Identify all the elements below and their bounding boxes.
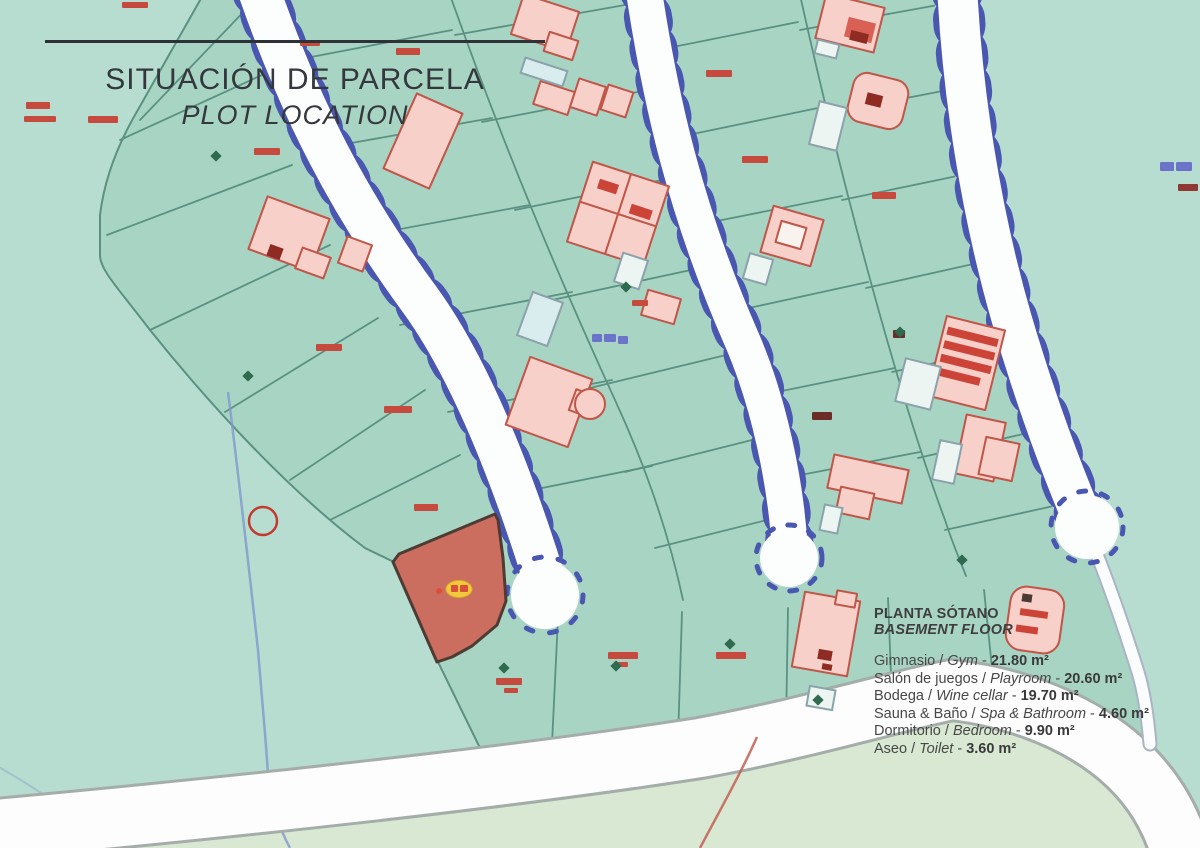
legend-item: Gimnasio / Gym - 21.80 m² [874, 653, 1149, 671]
legend-item: Dormitorio / Bedroom - 9.90 m² [874, 723, 1149, 741]
separator: / [924, 688, 936, 704]
room-area: 9.90 m² [1025, 723, 1075, 739]
separator: / [978, 671, 990, 687]
plot-marker-text-mark [460, 585, 468, 592]
plot-marker-dot [436, 588, 442, 594]
room-name-en: Gym [947, 653, 978, 669]
legend-item: Aseo / Toilet - 3.60 m² [874, 741, 1149, 759]
page-subtitle: PLOT LOCATION [45, 100, 545, 130]
room-name-en: Spa & Bathroom [980, 706, 1086, 722]
legend-item: Bodega / Wine cellar - 19.70 m² [874, 688, 1149, 706]
room-name-en: Bedroom [953, 723, 1012, 739]
plot-marker-text-mark [451, 585, 458, 592]
room-name-es: Dormitorio [874, 723, 941, 739]
separator: / [935, 653, 947, 669]
separator: - [978, 653, 991, 669]
room-area: 19.70 m² [1021, 688, 1079, 704]
page-title: SITUACIÓN DE PARCELA [45, 63, 545, 97]
room-name-es: Salón de juegos [874, 671, 978, 687]
separator: / [941, 723, 953, 739]
room-name-es: Aseo [874, 741, 907, 757]
separator: - [1012, 723, 1025, 739]
room-area: 4.60 m² [1099, 706, 1149, 722]
legend-heading: PLANTA SÓTANO BASEMENT FLOOR [874, 606, 1149, 638]
room-name-es: Sauna & Baño [874, 706, 968, 722]
street-name-label-right-edge [1160, 162, 1192, 171]
room-name-es: Bodega [874, 688, 924, 704]
title-block: SITUACIÓN DE PARCELA PLOT LOCATION [45, 40, 545, 130]
separator: / [907, 741, 919, 757]
legend-title-spanish: PLANTA SÓTANO [874, 606, 1149, 622]
room-name-es: Gimnasio [874, 653, 935, 669]
plot-marker [446, 581, 472, 598]
basement-legend: PLANTA SÓTANO BASEMENT FLOOR Gimnasio / … [874, 606, 1149, 758]
room-name-en: Playroom [990, 671, 1051, 687]
legend-title-english: BASEMENT FLOOR [874, 622, 1149, 638]
legend-item-list: Gimnasio / Gym - 21.80 m² Salón de juego… [874, 653, 1149, 758]
title-rule [45, 40, 545, 43]
building-tall-south [792, 590, 860, 676]
legend-item: Salón de juegos / Playroom - 20.60 m² [874, 671, 1149, 689]
room-area: 21.80 m² [991, 653, 1049, 669]
room-area: 3.60 m² [966, 741, 1016, 757]
separator: - [1086, 706, 1099, 722]
separator: - [1008, 688, 1021, 704]
room-area: 20.60 m² [1064, 671, 1122, 687]
separator: / [968, 706, 980, 722]
room-name-en: Wine cellar [936, 688, 1008, 704]
room-name-en: Toilet [919, 741, 953, 757]
separator: - [953, 741, 966, 757]
separator: - [1051, 671, 1064, 687]
plot-location-page: SITUACIÓN DE PARCELA PLOT LOCATION PLANT… [0, 0, 1200, 848]
legend-item: Sauna & Baño / Spa & Bathroom - 4.60 m² [874, 706, 1149, 724]
